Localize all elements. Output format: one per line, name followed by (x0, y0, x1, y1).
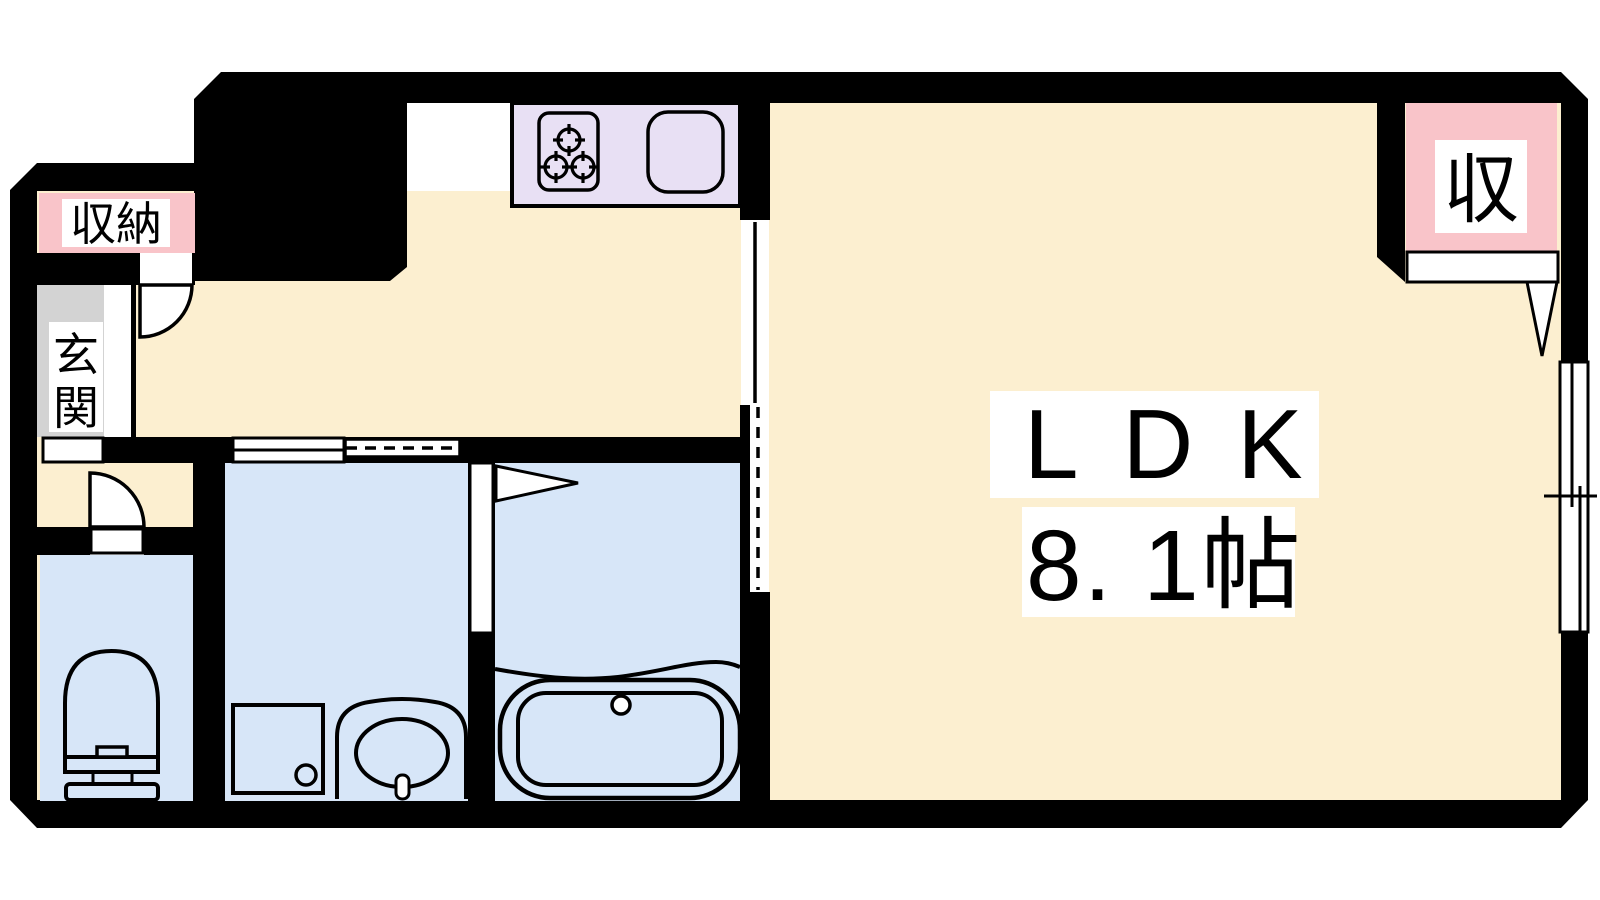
washroom-window (233, 438, 344, 462)
hall-storage-door-gap (140, 253, 192, 285)
entrance-step-edge-line (131, 285, 136, 437)
wall-bottom (10, 800, 1588, 828)
ldk-size-label: 8. 1帖 (1026, 510, 1303, 622)
entrance-label-char-2: 関 (53, 382, 99, 434)
bathtub-drain-icon (612, 696, 630, 714)
wall-kitchen-ldk-top (740, 72, 770, 220)
wall-top-left (10, 163, 194, 191)
bathroom-floor (495, 463, 740, 801)
ldk-closet-door (1407, 252, 1558, 282)
entrance-label-char-1: 玄 (53, 329, 99, 381)
toilet-seat-notch (97, 747, 127, 757)
floor-plan: 収納 玄 関 収 LDK 8. 1帖 (0, 0, 1600, 900)
ldk-storage-label: 収 (1443, 148, 1519, 233)
floor-plan-page: 収納 玄 関 収 LDK 8. 1帖 (0, 0, 1600, 900)
ldk-label: LDK (1024, 389, 1347, 499)
toilet-door-leaf (91, 529, 143, 553)
entrance-step-strip (104, 285, 131, 437)
entrance-step-box (43, 438, 103, 462)
hall-storage-label: 収納 (70, 198, 162, 250)
toilet-seat-band (65, 757, 158, 772)
wall-left (10, 163, 37, 828)
wall-block-top-left (194, 72, 407, 281)
washroom-dashed-opening (346, 440, 459, 456)
kitchen-sink-icon (648, 112, 723, 192)
wash-basin-faucet-icon (396, 775, 409, 799)
wall-bath-ldk (740, 592, 770, 828)
wall-sliding-pocket (740, 405, 750, 592)
kitchen-counter (512, 103, 740, 206)
entrance-label: 玄 関 (49, 322, 103, 434)
toilet-tank (66, 784, 158, 800)
washroom-floor (225, 463, 468, 801)
wall-ldk-closet (1377, 103, 1405, 282)
wall-toilet-washroom (193, 437, 225, 801)
bathroom-door-leaf (470, 463, 493, 633)
